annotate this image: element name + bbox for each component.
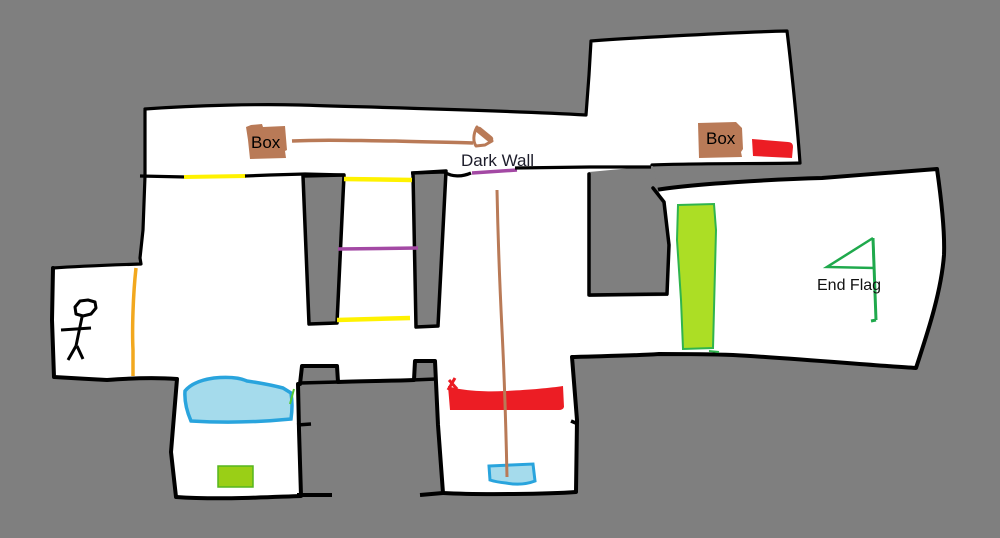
svg-text:End Flag: End Flag <box>817 277 881 294</box>
svg-text:Box: Box <box>251 133 281 152</box>
svg-text:Box: Box <box>706 129 736 148</box>
svg-text:Dark Wall: Dark Wall <box>461 151 534 170</box>
